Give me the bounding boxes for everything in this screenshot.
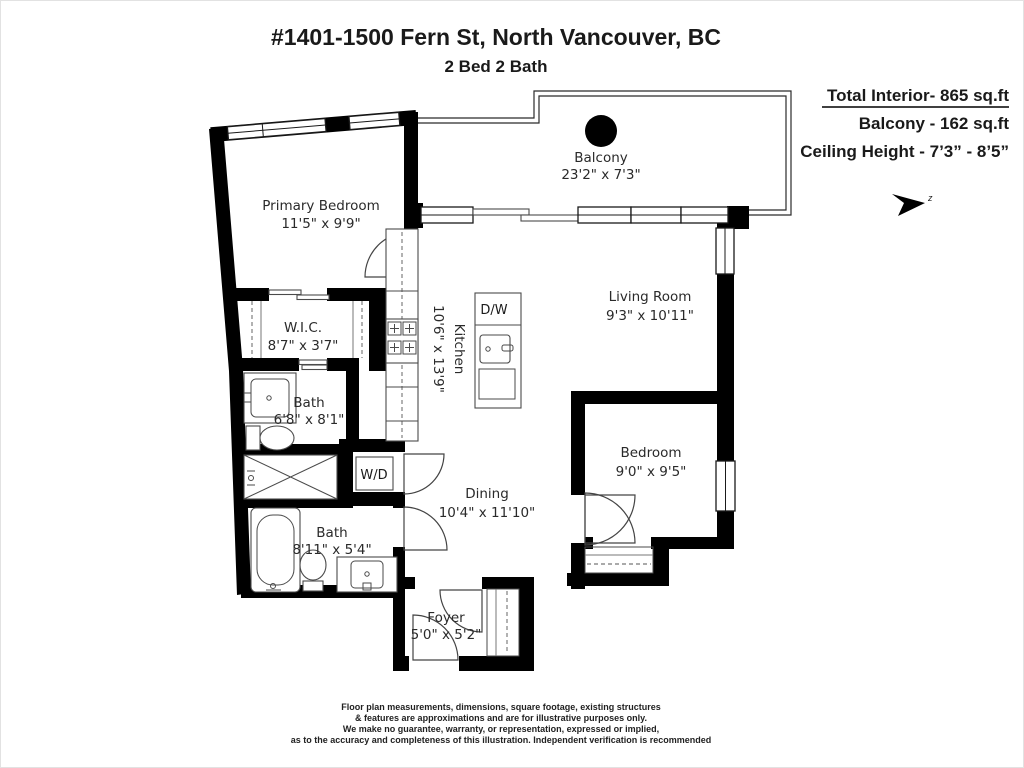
disclaimer: Floor plan measurements, dimensions, squ… <box>291 702 712 745</box>
room-dims-bath-main: 8'11" x 5'4" <box>292 542 371 558</box>
kitchen-label-group: Kitchen 10'6" x 13'9" <box>430 305 467 393</box>
room-dims-kitchen: 10'6" x 13'9" <box>430 305 446 393</box>
room-dims-bath-ensuite: 6'8" x 8'1" <box>274 412 345 428</box>
room-label-foyer: Foyer <box>427 610 465 626</box>
disclaimer-line-3: We make no guarantee, warranty, or repre… <box>343 724 659 734</box>
toilet-icon <box>246 426 294 450</box>
washer-dryer: W/D <box>356 457 393 490</box>
stat-balcony: Balcony - 162 sq.ft <box>859 114 1010 133</box>
page-subtitle: 2 Bed 2 Bath <box>445 57 548 76</box>
room-dims-balcony: 23'2" x 7'3" <box>561 167 640 183</box>
window-wall <box>421 207 728 223</box>
stats-block: Total Interior- 865 sq.ft Balcony - 162 … <box>800 86 1009 161</box>
room-dims-bedroom: 9'0" x 9'5" <box>616 464 687 480</box>
foyer-closet <box>487 589 519 656</box>
stat-ceiling-height: Ceiling Height - 7’3” - 8’5” <box>800 142 1009 161</box>
stat-total-interior: Total Interior- 865 sq.ft <box>827 86 1009 105</box>
north-arrow-label: z <box>927 193 933 203</box>
vanity-sink-2-icon <box>337 557 397 592</box>
room-label-kitchen: Kitchen <box>451 324 467 375</box>
washer-dryer-label: W/D <box>360 468 387 483</box>
room-dims-wic: 8'7" x 3'7" <box>268 338 339 354</box>
room-label-bath-main: Bath <box>316 525 347 541</box>
dishwasher-label: D/W <box>480 303 507 318</box>
room-dims-dining: 10'4" x 11'10" <box>439 505 536 521</box>
bedroom-french-door-2 <box>585 493 635 543</box>
wic-pocket-door <box>269 290 329 300</box>
room-label-bath-ensuite: Bath <box>293 395 324 411</box>
floor-plan-page: #1401-1500 Fern St, North Vancouver, BC … <box>0 0 1024 768</box>
page-title: #1401-1500 Fern St, North Vancouver, BC <box>271 24 721 50</box>
bath-ensuite-pocket-door <box>299 360 327 370</box>
kitchen-counter <box>386 229 418 441</box>
floor-plan-svg: #1401-1500 Fern St, North Vancouver, BC … <box>1 1 1024 768</box>
disclaimer-line-4: as to the accuracy and completeness of t… <box>291 735 712 745</box>
disclaimer-line-1: Floor plan measurements, dimensions, squ… <box>341 702 661 712</box>
room-label-living-room: Living Room <box>609 289 692 305</box>
room-label-dining: Dining <box>465 486 509 502</box>
room-dims-foyer: 5'0" x 5'2" <box>411 627 482 643</box>
laundry-door <box>404 454 444 494</box>
room-label-wic: W.I.C. <box>284 320 322 336</box>
primary-bedroom-top-wall <box>210 110 417 142</box>
north-arrow-icon: z <box>892 193 933 216</box>
sliding-door <box>473 209 579 221</box>
shower-icon <box>244 455 337 499</box>
island-sink-icon <box>480 335 513 363</box>
stove-icon <box>386 319 418 363</box>
room-label-bedroom: Bedroom <box>620 445 681 461</box>
room-dims-living-room: 9'3" x 10'11" <box>606 308 694 324</box>
room-label-balcony: Balcony <box>574 150 628 166</box>
room-dims-primary-bedroom: 11'5" x 9'9" <box>281 216 360 232</box>
balcony-column <box>585 115 617 147</box>
bedroom-closet <box>585 547 653 573</box>
room-label-primary-bedroom: Primary Bedroom <box>262 198 380 214</box>
disclaimer-line-2: & features are approximations and are fo… <box>355 713 647 723</box>
